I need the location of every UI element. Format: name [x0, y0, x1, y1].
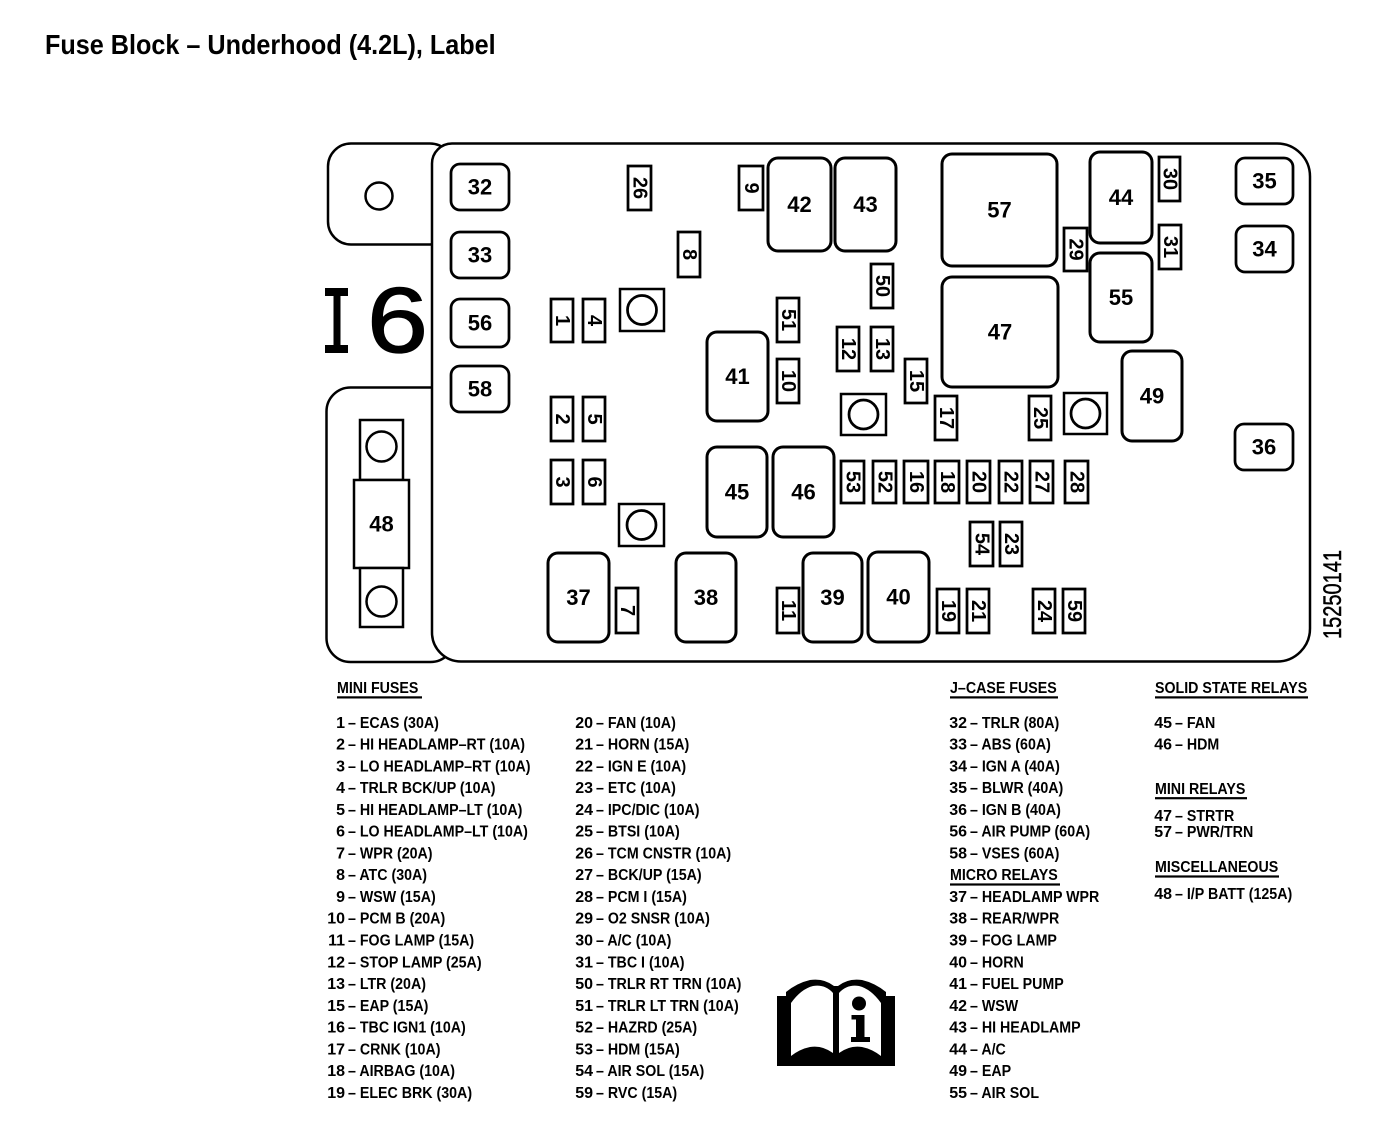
- svg-text:– TRLR BCK/UP (10A): – TRLR BCK/UP (10A): [348, 779, 495, 797]
- svg-text:24: 24: [1033, 600, 1055, 623]
- svg-text:6: 6: [367, 268, 428, 372]
- svg-text:– TRLR LT TRN (10A): – TRLR LT TRN (10A): [596, 997, 739, 1015]
- svg-text:59: 59: [1063, 600, 1085, 622]
- svg-text:50: 50: [871, 275, 893, 297]
- svg-text:MINI FUSES: MINI FUSES: [337, 679, 418, 697]
- svg-text:48: 48: [369, 512, 393, 537]
- svg-text:– IPC/DIC (10A): – IPC/DIC (10A): [596, 801, 700, 819]
- svg-text:34: 34: [1252, 237, 1277, 262]
- svg-text:33: 33: [949, 737, 967, 754]
- svg-text:26: 26: [629, 177, 651, 199]
- svg-text:24: 24: [575, 802, 593, 819]
- svg-text:– TBC I (10A): – TBC I (10A): [596, 954, 685, 972]
- svg-text:20: 20: [968, 471, 990, 493]
- svg-text:– VSES (60A): – VSES (60A): [970, 845, 1059, 863]
- svg-text:J–CASE FUSES: J–CASE FUSES: [950, 679, 1057, 697]
- svg-text:46: 46: [791, 480, 815, 505]
- svg-text:– HDM: – HDM: [1175, 736, 1219, 754]
- svg-text:45: 45: [1154, 715, 1172, 732]
- svg-text:47: 47: [1154, 808, 1172, 825]
- svg-text:12: 12: [837, 338, 859, 360]
- svg-text:2: 2: [551, 413, 573, 424]
- svg-text:– EAP: – EAP: [970, 1062, 1011, 1080]
- svg-text:2: 2: [336, 737, 345, 754]
- svg-text:51: 51: [575, 998, 593, 1015]
- svg-text:– STRTR: – STRTR: [1175, 807, 1234, 825]
- svg-text:– PCM I (15A): – PCM I (15A): [596, 888, 687, 906]
- svg-text:– LO HEADLAMP–LT (10A): – LO HEADLAMP–LT (10A): [348, 823, 528, 841]
- svg-text:33: 33: [468, 243, 492, 268]
- svg-text:– EAP (15A): – EAP (15A): [348, 997, 428, 1015]
- svg-text:– FAN: – FAN: [1175, 714, 1215, 732]
- svg-text:42: 42: [949, 998, 967, 1015]
- svg-text:31: 31: [575, 954, 593, 971]
- svg-text:29: 29: [575, 911, 593, 928]
- svg-text:1: 1: [336, 715, 345, 732]
- svg-text:13: 13: [327, 976, 345, 993]
- svg-text:– PWR/TRN: – PWR/TRN: [1175, 823, 1253, 841]
- svg-text:52: 52: [575, 1020, 593, 1037]
- svg-text:3: 3: [551, 476, 573, 487]
- svg-text:– FUEL PUMP: – FUEL PUMP: [970, 975, 1064, 993]
- svg-text:1: 1: [551, 315, 573, 326]
- svg-text:– PCM B (20A): – PCM B (20A): [348, 910, 445, 928]
- svg-text:– IGN A (40A): – IGN A (40A): [970, 758, 1060, 776]
- svg-text:– ATC (30A): – ATC (30A): [348, 866, 427, 884]
- svg-text:36: 36: [949, 802, 967, 819]
- svg-text:– TRLR (80A): – TRLR (80A): [970, 714, 1059, 732]
- svg-text:4: 4: [336, 780, 345, 797]
- svg-text:– TBC IGN1 (10A): – TBC IGN1 (10A): [348, 1019, 466, 1037]
- svg-text:12: 12: [327, 954, 345, 971]
- svg-text:8: 8: [678, 249, 700, 260]
- svg-text:47: 47: [988, 320, 1012, 345]
- svg-text:53: 53: [842, 471, 864, 493]
- svg-text:21: 21: [575, 737, 593, 754]
- svg-text:19: 19: [937, 600, 959, 622]
- svg-text:58: 58: [468, 377, 492, 402]
- svg-text:27: 27: [1031, 471, 1053, 493]
- svg-text:58: 58: [949, 845, 967, 862]
- svg-text:32: 32: [468, 175, 492, 200]
- svg-text:21: 21: [967, 600, 989, 622]
- svg-text:53: 53: [575, 1041, 593, 1058]
- svg-text:– CRNK (10A): – CRNK (10A): [348, 1041, 440, 1059]
- svg-text:45: 45: [725, 480, 749, 505]
- svg-text:15: 15: [327, 998, 345, 1015]
- svg-text:MISCELLANEOUS: MISCELLANEOUS: [1155, 858, 1278, 876]
- svg-text:51: 51: [777, 309, 799, 331]
- svg-text:7: 7: [616, 605, 638, 616]
- svg-text:54: 54: [971, 533, 993, 556]
- svg-text:17: 17: [327, 1041, 345, 1058]
- svg-text:16: 16: [905, 471, 927, 493]
- svg-text:23: 23: [1000, 533, 1022, 555]
- svg-text:5: 5: [583, 413, 605, 424]
- svg-text:35: 35: [1252, 169, 1276, 194]
- svg-text:– AIRBAG (10A): – AIRBAG (10A): [348, 1062, 455, 1080]
- svg-text:– HDM (15A): – HDM (15A): [596, 1041, 680, 1059]
- svg-text:7: 7: [336, 845, 345, 862]
- svg-text:43: 43: [949, 1020, 967, 1037]
- svg-text:SOLID STATE RELAYS: SOLID STATE RELAYS: [1155, 679, 1307, 697]
- svg-text:40: 40: [886, 585, 910, 610]
- svg-text:– STOP LAMP (25A): – STOP LAMP (25A): [348, 954, 482, 972]
- svg-text:4: 4: [583, 315, 605, 327]
- svg-text:– TRLR RT TRN (10A): – TRLR RT TRN (10A): [596, 975, 741, 993]
- svg-text:38: 38: [949, 911, 967, 928]
- svg-text:9: 9: [336, 889, 345, 906]
- svg-text:– FOG LAMP (15A): – FOG LAMP (15A): [348, 932, 474, 950]
- svg-text:16: 16: [327, 1020, 345, 1037]
- svg-text:40: 40: [949, 954, 967, 971]
- svg-text:– ETC (10A): – ETC (10A): [596, 779, 676, 797]
- svg-text:– A/C: – A/C: [970, 1041, 1006, 1059]
- svg-text:50: 50: [575, 976, 593, 993]
- svg-text:36: 36: [1252, 435, 1276, 460]
- svg-text:27: 27: [575, 867, 593, 884]
- svg-text:– A/C (10A): – A/C (10A): [596, 932, 671, 950]
- svg-text:57: 57: [1154, 824, 1172, 841]
- svg-text:– HI HEADLAMP–RT (10A): – HI HEADLAMP–RT (10A): [348, 736, 525, 754]
- svg-text:MICRO RELAYS: MICRO RELAYS: [950, 866, 1058, 884]
- svg-text:– ECAS (30A): – ECAS (30A): [348, 714, 439, 732]
- svg-text:52: 52: [874, 471, 896, 493]
- svg-text:19: 19: [327, 1085, 345, 1102]
- svg-text:– I/P BATT (125A): – I/P BATT (125A): [1175, 885, 1292, 903]
- svg-text:6: 6: [336, 824, 345, 841]
- svg-text:– BCK/UP (15A): – BCK/UP (15A): [596, 866, 702, 884]
- svg-text:57: 57: [987, 198, 1011, 223]
- svg-text:– ABS (60A): – ABS (60A): [970, 736, 1051, 754]
- svg-text:26: 26: [575, 845, 593, 862]
- svg-text:49: 49: [1140, 384, 1164, 409]
- svg-text:– TCM CNSTR (10A): – TCM CNSTR (10A): [596, 845, 731, 863]
- svg-text:Fuse Block – Underhood (4.2L),: Fuse Block – Underhood (4.2L), Label: [45, 29, 496, 61]
- svg-text:39: 39: [949, 933, 967, 950]
- svg-text:37: 37: [949, 889, 967, 906]
- svg-text:– AIR PUMP (60A): – AIR PUMP (60A): [970, 823, 1090, 841]
- svg-text:15250141: 15250141: [1319, 550, 1347, 639]
- svg-text:49: 49: [949, 1063, 967, 1080]
- svg-text:– AIR SOL (15A): – AIR SOL (15A): [596, 1062, 704, 1080]
- svg-text:– LO HEADLAMP–RT (10A): – LO HEADLAMP–RT (10A): [348, 758, 531, 776]
- svg-text:46: 46: [1154, 737, 1172, 754]
- svg-text:8: 8: [336, 867, 345, 884]
- svg-text:– FOG LAMP: – FOG LAMP: [970, 932, 1057, 950]
- svg-text:30: 30: [1159, 168, 1181, 190]
- svg-text:55: 55: [1109, 285, 1133, 310]
- svg-text:– AIR SOL: – AIR SOL: [970, 1084, 1039, 1102]
- svg-text:48: 48: [1154, 886, 1172, 903]
- svg-text:30: 30: [575, 933, 593, 950]
- svg-text:59: 59: [575, 1085, 593, 1102]
- svg-text:6: 6: [583, 476, 605, 487]
- svg-text:MINI RELAYS: MINI RELAYS: [1155, 780, 1245, 798]
- svg-text:56: 56: [468, 311, 492, 336]
- svg-text:41: 41: [725, 364, 749, 389]
- svg-text:– RVC (15A): – RVC (15A): [596, 1084, 677, 1102]
- svg-text:– WSW (15A): – WSW (15A): [348, 888, 436, 906]
- svg-text:9: 9: [740, 182, 762, 193]
- svg-text:– HI HEADLAMP–LT (10A): – HI HEADLAMP–LT (10A): [348, 801, 522, 819]
- svg-text:– FAN (10A): – FAN (10A): [596, 714, 676, 732]
- svg-text:– LTR (20A): – LTR (20A): [348, 975, 426, 993]
- svg-text:23: 23: [575, 780, 593, 797]
- svg-text:– IGN B (40A): – IGN B (40A): [970, 801, 1061, 819]
- svg-text:– BLWR (40A): – BLWR (40A): [970, 779, 1063, 797]
- svg-text:25: 25: [1029, 407, 1051, 429]
- svg-text:– BTSI (10A): – BTSI (10A): [596, 823, 680, 841]
- svg-text:10: 10: [777, 370, 799, 392]
- svg-text:– HAZRD (25A): – HAZRD (25A): [596, 1019, 697, 1037]
- svg-text:25: 25: [575, 824, 593, 841]
- svg-text:5: 5: [336, 802, 345, 819]
- svg-text:20: 20: [575, 715, 593, 732]
- svg-text:39: 39: [820, 585, 844, 610]
- svg-text:56: 56: [949, 824, 967, 841]
- svg-text:18: 18: [327, 1063, 345, 1080]
- svg-text:13: 13: [871, 338, 893, 360]
- svg-text:38: 38: [694, 585, 718, 610]
- svg-text:17: 17: [935, 407, 957, 429]
- svg-text:32: 32: [949, 715, 967, 732]
- svg-text:– WSW: – WSW: [970, 997, 1019, 1015]
- svg-text:– IGN E (10A): – IGN E (10A): [596, 758, 686, 776]
- svg-text:10: 10: [327, 911, 345, 928]
- svg-text:42: 42: [787, 192, 811, 217]
- svg-text:11: 11: [777, 600, 799, 621]
- svg-text:37: 37: [566, 585, 590, 610]
- svg-text:18: 18: [936, 471, 958, 493]
- svg-text:54: 54: [575, 1063, 593, 1080]
- svg-text:28: 28: [1066, 471, 1088, 493]
- svg-text:41: 41: [949, 976, 967, 993]
- svg-text:15: 15: [905, 370, 927, 392]
- svg-text:3: 3: [336, 758, 345, 775]
- svg-text:– REAR/WPR: – REAR/WPR: [970, 910, 1059, 928]
- svg-text:44: 44: [1109, 185, 1134, 210]
- svg-text:– HORN (15A): – HORN (15A): [596, 736, 689, 754]
- svg-text:35: 35: [949, 780, 967, 797]
- svg-text:43: 43: [853, 192, 877, 217]
- svg-text:11: 11: [328, 933, 345, 950]
- svg-text:– WPR (20A): – WPR (20A): [348, 845, 433, 863]
- svg-text:– ELEC BRK (30A): – ELEC BRK (30A): [348, 1084, 472, 1102]
- svg-text:22: 22: [1000, 471, 1022, 493]
- svg-text:28: 28: [575, 889, 593, 906]
- svg-text:22: 22: [575, 758, 593, 775]
- svg-text:55: 55: [949, 1085, 967, 1102]
- svg-text:29: 29: [1065, 238, 1087, 260]
- svg-text:– O2 SNSR (10A): – O2 SNSR (10A): [596, 910, 710, 928]
- svg-text:– HEADLAMP WPR: – HEADLAMP WPR: [970, 888, 1099, 906]
- svg-text:34: 34: [949, 758, 967, 775]
- svg-text:– HORN: – HORN: [970, 954, 1024, 972]
- svg-text:– HI HEADLAMP: – HI HEADLAMP: [970, 1019, 1081, 1037]
- svg-text:31: 31: [1159, 236, 1181, 258]
- svg-text:44: 44: [949, 1041, 967, 1058]
